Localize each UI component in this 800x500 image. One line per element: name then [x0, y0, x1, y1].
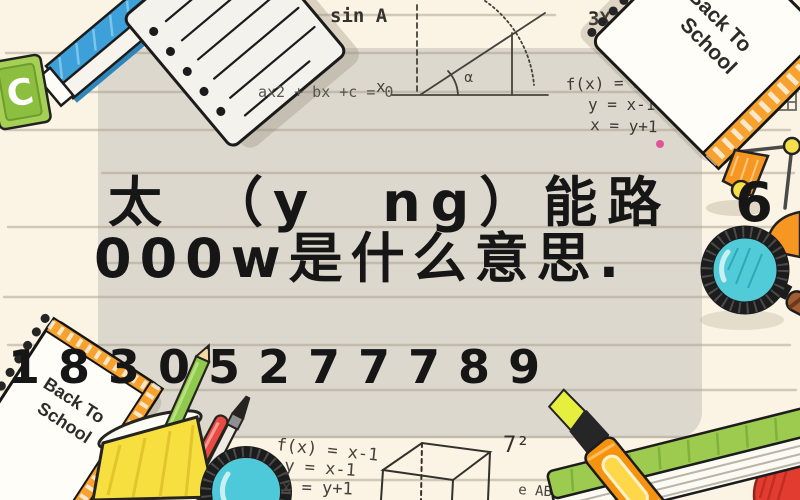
- pink-dot: [656, 140, 664, 148]
- title-line-1: 太 （y ng）能路 6: [108, 176, 783, 230]
- lamp-joint: [784, 138, 800, 154]
- letter-badge: C: [0, 54, 52, 130]
- formula-sin: sin A: [330, 5, 388, 27]
- equations-bottom: f(x) = x-1 y = x-1 x = y+1: [275, 435, 379, 499]
- title-line-2: 000w是什么意思.: [94, 232, 627, 286]
- school-doodle-banner: C sin A ax2 + bx +c = 0 x α 3X2+ f(x) = …: [0, 0, 800, 500]
- equation-bottom-3: x = y+1: [281, 477, 353, 499]
- angle-alpha-label: α: [464, 70, 473, 86]
- seven-squared: 7²: [503, 433, 530, 458]
- axis-x-label: x: [376, 77, 386, 96]
- cube-sketch: [381, 443, 490, 500]
- equation-top-3: x = y+1: [590, 115, 658, 136]
- magnifier-bottom: [206, 452, 286, 500]
- phone-number: 18305277789: [8, 344, 558, 390]
- formula-quadratic: ax2 + bx +c = 0: [258, 83, 393, 101]
